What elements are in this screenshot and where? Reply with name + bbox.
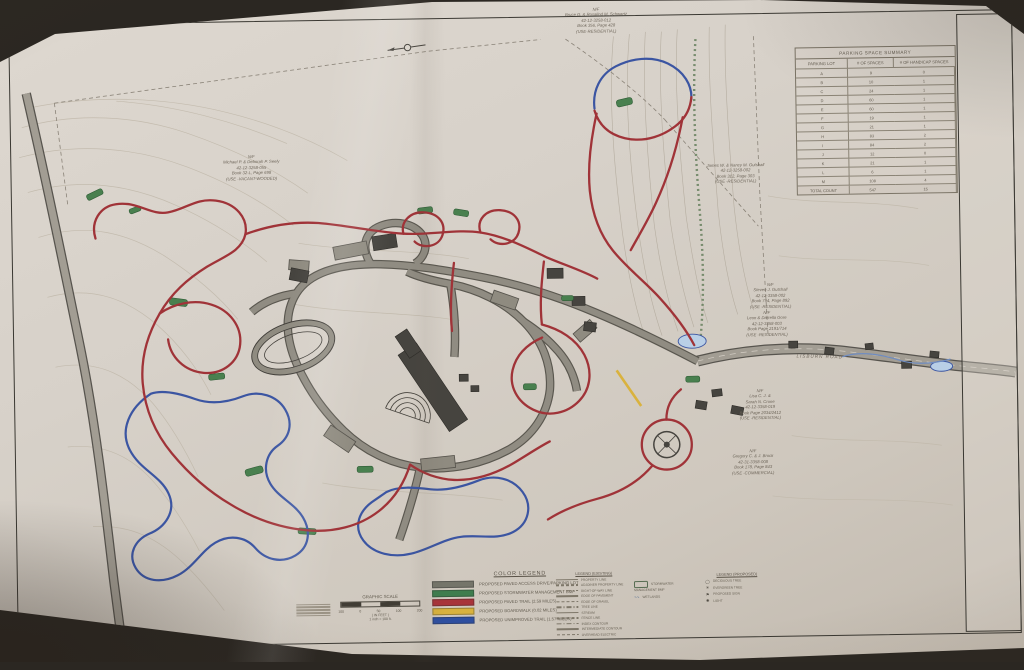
parcel-label: N/F Gregory C. & J. Brock 42-31-3358-008… bbox=[702, 447, 804, 476]
total-handicap-cell: 15 bbox=[895, 184, 956, 193]
tree-line bbox=[693, 39, 704, 342]
graphic-scale-title: GRAPHIC SCALE bbox=[332, 593, 428, 600]
legend-existing-label: INTERMEDIATE CONTOUR bbox=[582, 626, 622, 631]
legend-existing-item: PROPERTY LINE bbox=[556, 577, 632, 582]
title-block: SHEET NO. 1 OF 1 DESIGNED BY CJK CHECKED… bbox=[956, 13, 1022, 632]
parcel-label: N/F Lisa C. J. & Sarah N. Crone 42-12-33… bbox=[707, 387, 814, 421]
scale-tick: 0 bbox=[359, 609, 361, 613]
legend-existing-label: EDGE OF GRAVEL bbox=[581, 599, 609, 603]
legend-existing-item: STREAM bbox=[556, 610, 632, 615]
parcel-label: N/F Leon & Darrella Gore 42-12-3358-003 … bbox=[712, 309, 822, 338]
color-swatch bbox=[432, 590, 474, 597]
linetype-sample bbox=[556, 595, 578, 597]
legend-symbol-icon: ◯ bbox=[704, 578, 711, 583]
legend-proposed: LEGEND (PROPOSED) ◯ DECIDUOUS TREE ✳ EVE… bbox=[704, 572, 770, 605]
legend-existing-item: EDGE OF GRAVEL bbox=[556, 599, 632, 604]
color-swatch bbox=[432, 617, 474, 624]
color-swatch bbox=[432, 599, 474, 606]
linetype-sample bbox=[557, 634, 579, 636]
graphic-scale: GRAPHIC SCALE 100050100200 ( IN FEET ) 1… bbox=[332, 593, 428, 622]
linetype-sample bbox=[557, 617, 579, 619]
legend-proposed-label: EVERGREEN TREE bbox=[713, 585, 742, 589]
linetype-sample bbox=[556, 612, 578, 614]
legend-existing-item: FENCE LINE bbox=[556, 615, 632, 620]
road-name-label: LISBURN ROAD bbox=[796, 354, 843, 360]
color-swatch bbox=[432, 608, 474, 615]
total-label-cell: TOTAL COUNT bbox=[798, 186, 850, 195]
legend-existing-item: ADJOINER PROPERTY LINE bbox=[556, 582, 632, 587]
legend-proposed-item: ◯ DECIDUOUS TREE bbox=[704, 577, 770, 583]
scale-tick: 100 bbox=[396, 609, 402, 613]
legend-proposed-label: DECIDUOUS TREE bbox=[713, 578, 742, 582]
legend-existing-label: FENCE LINE bbox=[581, 616, 600, 620]
legend-proposed-label: PROPOSED SIGN bbox=[713, 591, 740, 595]
legend-existing-item: EDGE OF PAVEMENT bbox=[556, 593, 632, 598]
legend-existing-item: OVERHEAD ELECTRIC bbox=[557, 632, 633, 637]
legend-existing-label: PROPERTY LINE bbox=[581, 577, 606, 581]
column-header: # OF SPACES bbox=[848, 58, 894, 69]
legend-existing-label: RIGHT-OF-WAY LINE bbox=[581, 588, 612, 592]
linetype-sample bbox=[556, 584, 578, 586]
legend-existing-label: OVERHEAD ELECTRIC bbox=[582, 632, 617, 637]
linetype-sample bbox=[556, 601, 578, 603]
legend-existing-item: RIGHT-OF-WAY LINE bbox=[556, 588, 632, 593]
circular-court bbox=[654, 431, 680, 457]
color-legend-label: PROPOSED BOARDWALK (0.02 MILES) bbox=[479, 607, 556, 613]
color-swatch bbox=[432, 581, 474, 588]
north-arrow-icon bbox=[387, 44, 425, 51]
legend-existing-item: INTERMEDIATE CONTOUR bbox=[557, 626, 633, 631]
drawing-content: LISBURN ROAD PARKING SPACE SUMMARY PARKI… bbox=[0, 0, 1024, 670]
legend-existing-label: ADJOINER PROPERTY LINE bbox=[581, 582, 623, 587]
wetlands-icon: ∿∿ bbox=[634, 595, 639, 599]
parcel-label: N/F Steven J. Gutshall 42-12-3358-002 Bo… bbox=[715, 281, 825, 310]
linetype-sample bbox=[557, 623, 579, 625]
plan-notes bbox=[296, 602, 330, 619]
legend-existing: LEGEND (EXISTING) PROPERTY LINE ADJOINER… bbox=[556, 571, 633, 638]
left-road bbox=[26, 92, 125, 669]
parking-summary-table: PARKING SPACE SUMMARY PARKING LOT # OF S… bbox=[795, 45, 958, 196]
legend-bmp-wetlands: STORMWATER MANAGEMENT BMP ∿∿WETLANDS bbox=[634, 580, 694, 598]
buildings bbox=[288, 225, 940, 434]
boardwalk bbox=[617, 370, 642, 406]
site-access-drives bbox=[250, 218, 700, 542]
scale-bar bbox=[340, 600, 420, 607]
bmp-legend-item: STORMWATER MANAGEMENT BMP bbox=[634, 580, 694, 591]
legend-existing-label: STREAM bbox=[581, 610, 594, 614]
legend-symbol-icon: ⚑ bbox=[704, 591, 711, 596]
legend-existing-item: TREE LINE bbox=[556, 604, 632, 609]
legend-proposed-title: LEGEND (PROPOSED) bbox=[704, 572, 770, 577]
legend-symbol-icon: ✳ bbox=[704, 585, 711, 590]
parcel-label: N/F Michael P. & Deborah P. Seely 42-12-… bbox=[192, 153, 310, 182]
parcel-label: N/F Bruce G. & Rosalind M. Schwartz 42-1… bbox=[535, 6, 657, 35]
total-spaces-cell: 547 bbox=[850, 185, 896, 194]
legend-existing-label: EDGE OF PAVEMENT bbox=[581, 593, 613, 598]
legend-proposed-item: ⚑ PROPOSED SIGN bbox=[704, 590, 770, 596]
legend-proposed-item: ✳ EVERGREEN TREE bbox=[704, 584, 770, 590]
paper-sheet: LISBURN ROAD PARKING SPACE SUMMARY PARKI… bbox=[0, 0, 1024, 662]
legend-proposed-label: LIGHT bbox=[713, 598, 722, 602]
scale-tick: 100 bbox=[338, 610, 344, 614]
legend-existing-label: TREE LINE bbox=[581, 605, 598, 609]
legend-existing-title: LEGEND (EXISTING) bbox=[556, 571, 632, 576]
linetype-sample bbox=[557, 628, 579, 630]
legend-existing-label: INDEX CONTOUR bbox=[582, 621, 609, 625]
linetype-sample bbox=[556, 606, 578, 608]
legend-existing-item: INDEX CONTOUR bbox=[557, 621, 633, 626]
scale-tick: 200 bbox=[417, 608, 423, 612]
color-legend-label: PROPOSED PAVED TRAIL (2.59 MILES) bbox=[479, 598, 556, 604]
linetype-sample bbox=[556, 590, 578, 592]
legend-proposed-item: ✺ LIGHT bbox=[704, 597, 770, 603]
wetlands-label: WETLANDS bbox=[642, 594, 660, 598]
legend-symbol-icon: ✺ bbox=[704, 598, 711, 603]
linetype-sample bbox=[556, 579, 578, 581]
parcel-label: James W. & Nancy M. Gutshall 42-12-3258-… bbox=[687, 162, 783, 185]
